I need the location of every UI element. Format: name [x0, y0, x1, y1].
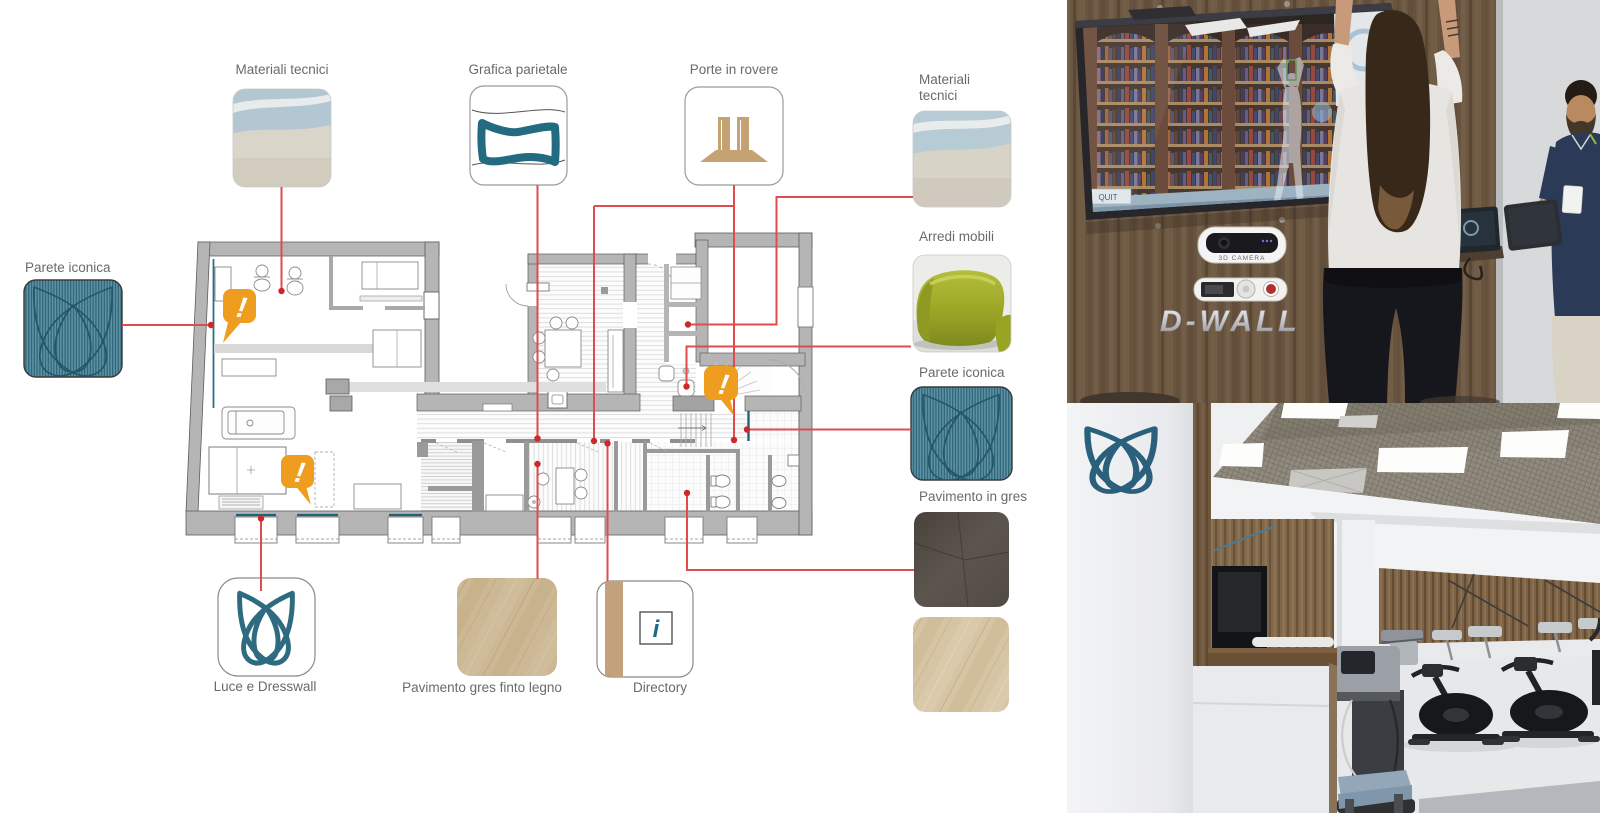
svg-text:Parete iconica: Parete iconica	[919, 365, 1005, 380]
svg-text:Materiali tecnici: Materiali tecnici	[235, 62, 328, 77]
svg-text:Pavimento gres finto legno: Pavimento gres finto legno	[402, 680, 562, 695]
svg-text:Materiali: Materiali	[919, 72, 970, 87]
svg-text:3D CAMERA: 3D CAMERA	[1219, 255, 1266, 262]
svg-text:Grafica parietale: Grafica parietale	[468, 62, 567, 77]
svg-text:Pavimento in gres: Pavimento in gres	[919, 489, 1027, 504]
svg-text:tecnici: tecnici	[919, 88, 957, 103]
svg-text:Directory: Directory	[633, 680, 687, 695]
svg-text:Porte in rovere: Porte in rovere	[690, 62, 779, 77]
svg-text:Arredi mobili: Arredi mobili	[919, 229, 994, 244]
svg-text:Luce e Dresswall: Luce e Dresswall	[214, 679, 317, 694]
svg-text:Parete iconica: Parete iconica	[25, 260, 111, 275]
svg-text:D-WALL: D-WALL	[1160, 305, 1301, 338]
